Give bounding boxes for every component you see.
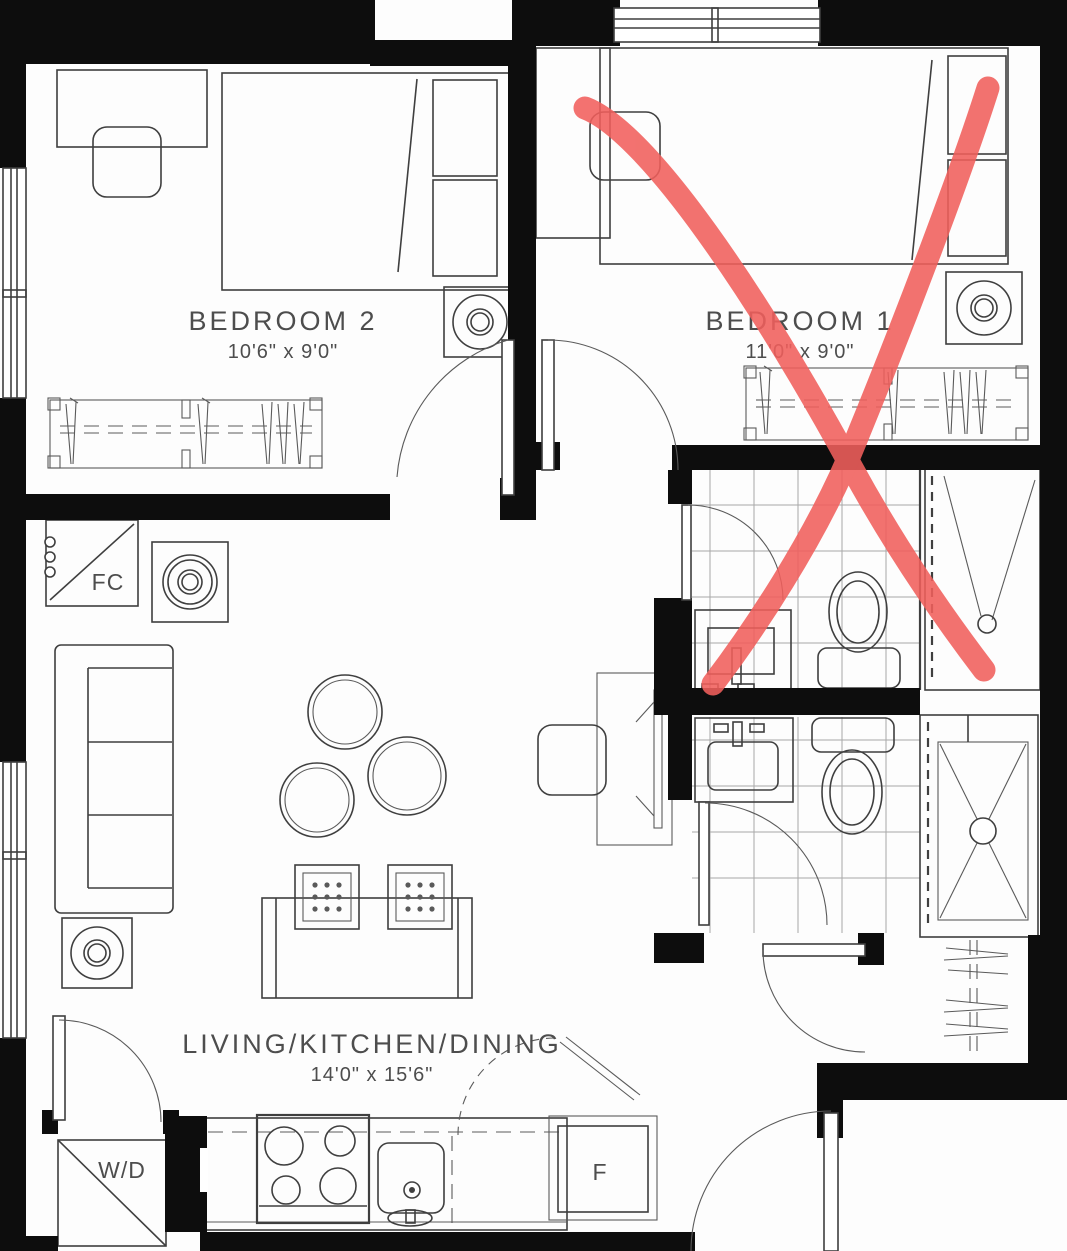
living-name-label: LIVING/KITCHEN/DINING bbox=[182, 1029, 562, 1059]
bedroom2-dim-label: 10'6" x 9'0" bbox=[228, 341, 339, 363]
fridge-label: F bbox=[592, 1159, 607, 1185]
hinge-dot bbox=[45, 552, 55, 562]
floor-plan: BEDROOM 2 10'6" x 9'0" BEDROOM 1 11'0" x… bbox=[0, 0, 1067, 1251]
window-bedroom2-left bbox=[3, 168, 26, 398]
hinge-dot bbox=[45, 537, 55, 547]
window-bedroom1-top bbox=[614, 8, 820, 42]
window-living-left bbox=[3, 762, 26, 1038]
bedroom2-name-label: BEDROOM 2 bbox=[188, 306, 377, 336]
hinge-dot bbox=[45, 567, 55, 577]
floor-plan-canvas: BEDROOM 2 10'6" x 9'0" BEDROOM 1 11'0" x… bbox=[0, 0, 1067, 1251]
living-dim-label: 14'0" x 15'6" bbox=[311, 1064, 434, 1086]
washer-dryer-label: W/D bbox=[98, 1157, 146, 1183]
bedroom1-name-label: BEDROOM 1 bbox=[705, 306, 894, 336]
fan-coil-label: FC bbox=[92, 569, 125, 595]
